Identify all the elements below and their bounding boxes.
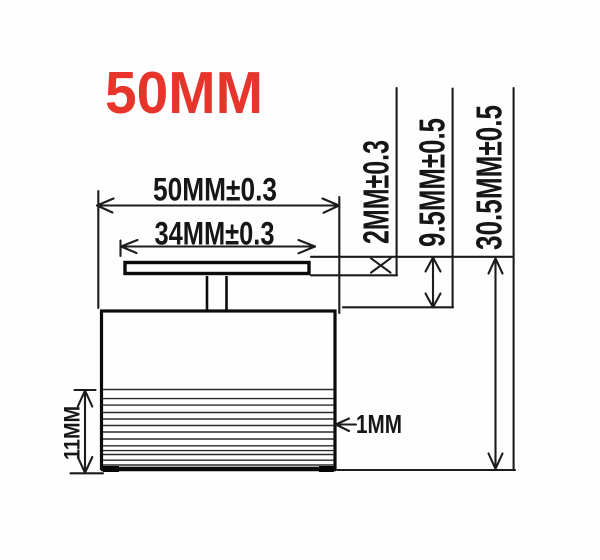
svg-text:11MM: 11MM <box>60 406 85 460</box>
svg-text:9.5MM±0.5: 9.5MM±0.5 <box>411 118 452 247</box>
svg-text:50MM±0.3: 50MM±0.3 <box>153 172 277 208</box>
svg-text:30.5MM±0.5: 30.5MM±0.5 <box>468 105 509 250</box>
svg-text:50MM: 50MM <box>105 60 263 126</box>
svg-text:1MM: 1MM <box>356 409 402 439</box>
svg-text:2MM±0.3: 2MM±0.3 <box>356 140 397 244</box>
